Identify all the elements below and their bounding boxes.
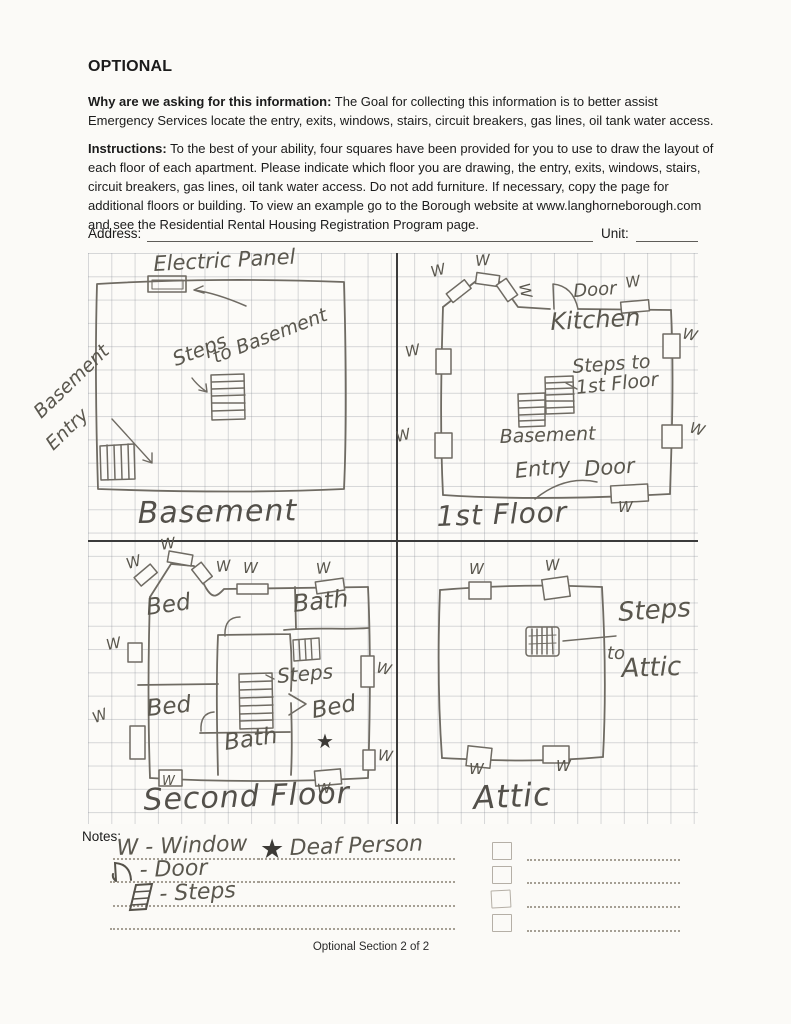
- basement-entry-steps-symbol: [100, 444, 135, 480]
- legend-door-label: - Door: [139, 858, 208, 882]
- window-label: W: [544, 558, 560, 574]
- bed-top-label: Bed: [145, 591, 192, 620]
- floorplan-grid-area: Electric Panel Steps to Basement Basemen…: [88, 253, 698, 824]
- notes-line: [258, 928, 455, 930]
- kitchen-label: Kitchen: [550, 305, 641, 334]
- window-label: W: [375, 660, 393, 678]
- notes-line: [527, 906, 680, 908]
- page-footer: Optional Section 2 of 2: [0, 941, 742, 953]
- steps-symbol-icon: [128, 882, 156, 912]
- arrow-to-electric-panel: [194, 286, 246, 306]
- notes-line: [527, 859, 680, 861]
- checkbox: [492, 842, 512, 860]
- checkbox: [491, 889, 512, 908]
- unit-label: Unit:: [601, 226, 629, 241]
- instructions-body: To the best of your ability, four square…: [88, 141, 713, 232]
- legend-steps-label: - Steps: [159, 880, 237, 906]
- instructions-paragraph: Instructions: To the best of your abilit…: [88, 139, 722, 234]
- steps-to-attic-label-line1: Steps: [617, 595, 691, 626]
- deaf-person-star-icon: ★: [316, 731, 334, 751]
- window-label: W: [105, 635, 123, 653]
- window-label: W: [469, 562, 484, 577]
- basement-steps-label: Basement: [499, 425, 596, 447]
- notes-line: [527, 882, 680, 884]
- steps-symbol: [518, 376, 574, 427]
- door-symbol-icon: [110, 858, 136, 884]
- window-label: W: [624, 274, 641, 291]
- window-label: W: [688, 421, 706, 439]
- page-title: OPTIONAL: [88, 58, 172, 76]
- notes-line: [258, 905, 455, 907]
- window-label: W: [618, 500, 633, 515]
- window-label: W: [377, 748, 393, 764]
- arrow-to-steps: [192, 378, 207, 392]
- legend-deaf-person-label: Deaf Person: [289, 833, 423, 860]
- notes-line: [527, 930, 680, 932]
- window-label: W: [215, 559, 231, 575]
- window-label: W: [159, 536, 176, 553]
- entry-door-label: Door: [584, 456, 636, 480]
- why-lead-in: Why are we asking for this information:: [88, 94, 331, 109]
- instructions-lead-in: Instructions:: [88, 141, 167, 156]
- why-paragraph: Why are we asking for this information: …: [88, 92, 722, 130]
- window-label: W: [429, 262, 447, 280]
- window-label: W: [475, 253, 491, 269]
- deaf-person-star-icon: ★: [260, 836, 284, 863]
- address-blank-line: [147, 241, 593, 242]
- basement-quadrant-title: Basement: [137, 496, 297, 529]
- small-steps-symbol: [293, 638, 320, 661]
- steps-symbol: [239, 673, 273, 729]
- notes-line: [258, 881, 455, 883]
- first-floor-quadrant-title: 1st Floor: [436, 498, 568, 531]
- window-label: W: [315, 561, 331, 577]
- basement-entry-arrow: [112, 419, 152, 463]
- checkbox: [492, 914, 512, 932]
- bath-top-label: Bath: [291, 586, 349, 616]
- window-label: W: [394, 427, 412, 445]
- steps-to-attic-label-line3: Attic: [621, 654, 682, 682]
- window-label: W: [681, 326, 699, 344]
- kitchen-door-label: Door: [573, 280, 617, 301]
- steps-label: Steps: [276, 661, 333, 686]
- checkbox: [492, 866, 512, 884]
- door-swing: [225, 617, 240, 636]
- steps-to-attic-symbol: [526, 627, 559, 656]
- second-floor-quadrant-title: Second Floor: [143, 779, 350, 816]
- unit-blank-line: [636, 241, 698, 242]
- window-label: W: [243, 561, 258, 576]
- window-label: W: [469, 762, 484, 777]
- electric-panel-box: [148, 276, 186, 292]
- steps-to-basement-symbol: [211, 374, 245, 420]
- entry-label: Entry: [514, 455, 572, 482]
- pointer-line: [563, 636, 616, 641]
- scanned-form-page: OPTIONAL Why are we asking for this info…: [0, 0, 791, 1024]
- window-label: W: [404, 342, 422, 360]
- address-label: Address:: [88, 226, 141, 241]
- bed-mid-label: Bed: [146, 693, 193, 721]
- notes-label: Notes:: [82, 829, 121, 844]
- window-label: W: [516, 282, 534, 300]
- notes-line: [110, 928, 271, 930]
- window-label: W: [556, 759, 571, 774]
- door-swing: [201, 712, 214, 731]
- attic-quadrant-title: Attic: [472, 778, 552, 814]
